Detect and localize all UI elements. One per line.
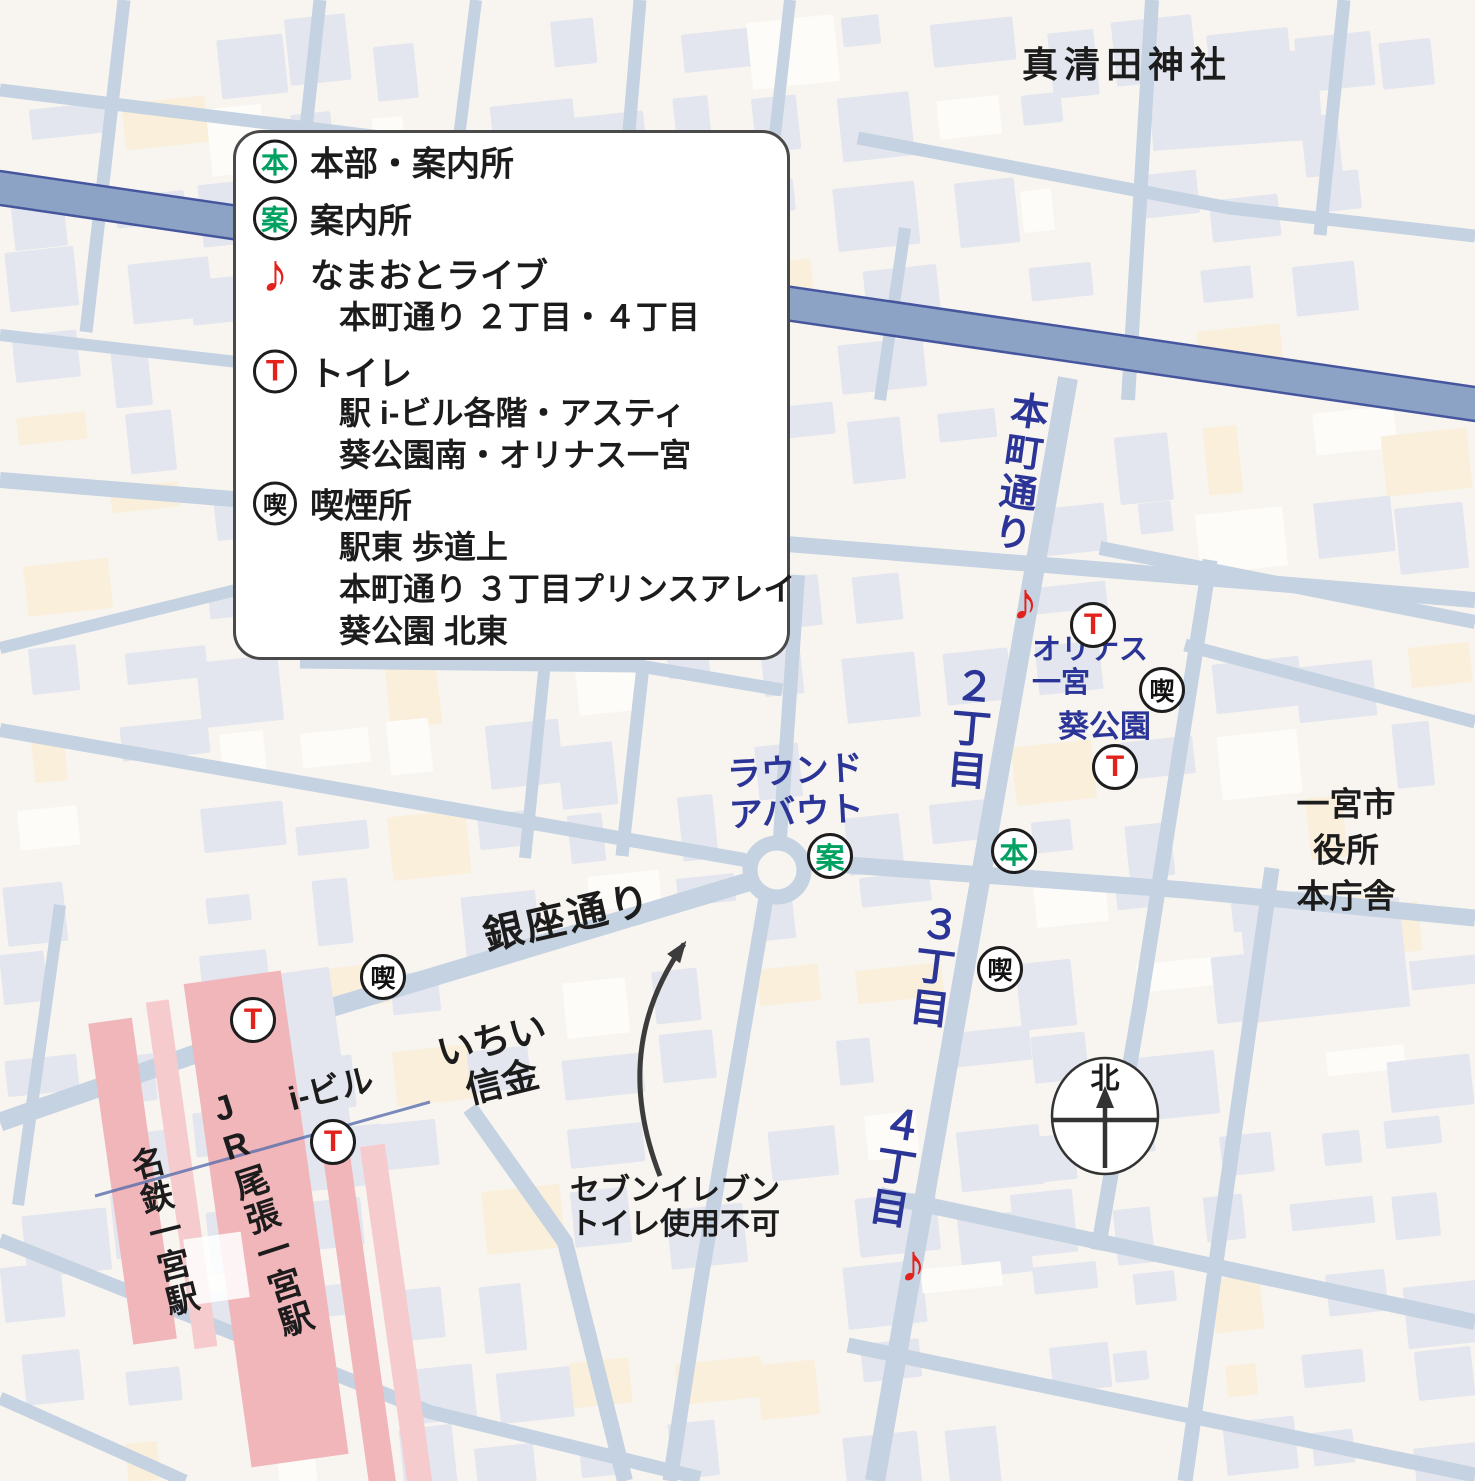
smoking-marker-aoi-northeast: 喫: [1139, 667, 1185, 713]
toilet-marker-orinasu: T: [1070, 602, 1116, 648]
building: [1113, 1350, 1150, 1383]
information-icon: 案: [815, 835, 844, 877]
building: [1202, 425, 1243, 496]
toilet-icon: T: [1084, 608, 1102, 642]
information-marker-roundabout: 案: [807, 833, 853, 879]
building: [21, 1349, 84, 1406]
building: [945, 1425, 1003, 1481]
building: [930, 16, 1017, 68]
building: [1313, 496, 1396, 559]
festival-map: 真清田神社 本町通り ２丁目 ３丁目 ４丁目 オリナス 一宮 葵公園 ラウンド …: [0, 0, 1475, 1481]
building: [4, 246, 79, 312]
building: [478, 1283, 527, 1354]
building: [1383, 1115, 1442, 1148]
building: [1138, 501, 1174, 535]
smoking-icon: 喫: [987, 951, 1012, 987]
toilet-icon: T: [324, 1125, 342, 1159]
headquarters-icon: 本: [253, 139, 297, 183]
legend-subline: 本町通り ２丁目・４丁目: [339, 292, 700, 338]
building: [561, 1052, 645, 1100]
building: [658, 1029, 717, 1083]
building: [1133, 1270, 1177, 1305]
building: [216, 33, 288, 99]
building: [841, 651, 921, 724]
building: [936, 95, 1002, 140]
headquarters-marker: 本: [991, 828, 1037, 874]
legend-subline: 葵公園南・オリナス一宮: [339, 430, 691, 476]
building: [496, 1366, 575, 1424]
legend-subline: 本町通り ３丁目プリンスアレイ: [339, 564, 795, 610]
legend-item-smoking: 喫 喫煙所: [253, 479, 412, 528]
smoking-icon: 喫: [1149, 672, 1174, 708]
legend-subline: 駅 i-ビル各階・アスティ: [339, 388, 686, 434]
building: [1301, 1349, 1365, 1389]
building: [386, 718, 434, 776]
building: [300, 727, 371, 768]
building: [567, 1122, 646, 1169]
building: [474, 1443, 539, 1481]
building: [1020, 188, 1055, 233]
legend: 本 本部・案内所 案 案内所 ♪ なまおとライブ 本町通り ２丁目・４丁目 T …: [233, 130, 790, 660]
building: [847, 417, 906, 485]
building: [373, 43, 419, 102]
building: [1015, 959, 1077, 1031]
building: [387, 809, 472, 881]
building: [1381, 427, 1473, 496]
smoking-marker-station-east: 喫: [360, 954, 406, 1000]
toilet-icon: T: [253, 349, 297, 393]
building: [852, 572, 904, 624]
building: [1394, 502, 1469, 575]
building: [485, 719, 565, 790]
legend-label: 案内所: [310, 194, 412, 243]
smoking-icon: 喫: [370, 959, 395, 995]
toilet-marker-aoi-south: T: [1092, 744, 1138, 790]
building: [836, 1037, 874, 1085]
legend-item-information: 案 案内所: [253, 194, 412, 243]
label-aoi-park: 葵公園: [1058, 708, 1151, 747]
building: [1391, 721, 1435, 789]
building: [954, 177, 1020, 248]
building: [1292, 261, 1359, 317]
smoking-icon: 喫: [253, 481, 297, 525]
building: [200, 801, 287, 854]
compass-north-label: 北: [1090, 1061, 1119, 1097]
toilet-marker-station-1: T: [230, 997, 276, 1043]
headquarters-icon: 本: [999, 830, 1028, 872]
building: [651, 968, 702, 1025]
legend-item-headquarters: 本 本部・案内所: [253, 137, 514, 186]
building: [1225, 1363, 1258, 1397]
building: [205, 894, 252, 925]
legend-subline: 駅東 歩道上: [339, 522, 508, 568]
building: [550, 17, 598, 67]
legend-label: 本部・案内所: [310, 137, 514, 186]
building: [841, 14, 881, 47]
building: [1414, 1346, 1475, 1401]
building: [1029, 262, 1094, 302]
legend-subline: 葵公園 北東: [339, 606, 508, 652]
legend-label: 喫煙所: [310, 479, 412, 528]
building: [1031, 819, 1073, 854]
building: [23, 558, 113, 617]
building: [1200, 265, 1254, 303]
building: [756, 963, 821, 1006]
toilet-marker-station-2: T: [310, 1119, 356, 1165]
building: [562, 977, 630, 1039]
building: [756, 1359, 820, 1420]
building: [1114, 432, 1174, 505]
building: [311, 877, 353, 946]
building: [17, 805, 81, 851]
toilet-icon: T: [1106, 750, 1124, 784]
live-note-4chome-icon: ♪: [900, 1238, 926, 1290]
building: [1386, 1054, 1474, 1113]
live-note-2chome-icon: ♪: [1012, 576, 1038, 628]
building: [0, 1262, 66, 1323]
building: [937, 408, 997, 443]
building: [1391, 1192, 1441, 1240]
label-seven-eleven-note: セブンイレブン トイレ使用不可: [570, 1174, 780, 1242]
building: [556, 741, 618, 810]
building: [1378, 38, 1435, 90]
building: [125, 409, 177, 474]
building: [1021, 92, 1064, 126]
legend-item-live: ♪ なまおとライブ: [253, 249, 548, 298]
building: [125, 1366, 183, 1405]
building: [1322, 1130, 1363, 1166]
label-roundabout: ラウンド アバウト: [726, 748, 866, 838]
building: [28, 644, 80, 695]
smoking-marker-3chome: 喫: [977, 946, 1023, 992]
building: [1011, 739, 1097, 806]
building: [196, 654, 284, 728]
building: [1408, 642, 1473, 689]
music-note-icon: ♪: [253, 251, 297, 295]
label-masumida-shrine: 真清田神社: [1022, 42, 1232, 87]
toilet-icon: T: [244, 1003, 262, 1037]
information-icon: 案: [253, 196, 297, 240]
legend-label: なまおとライブ: [310, 249, 548, 298]
label-city-hall: 一宮市役所 本庁舎: [1282, 782, 1411, 921]
